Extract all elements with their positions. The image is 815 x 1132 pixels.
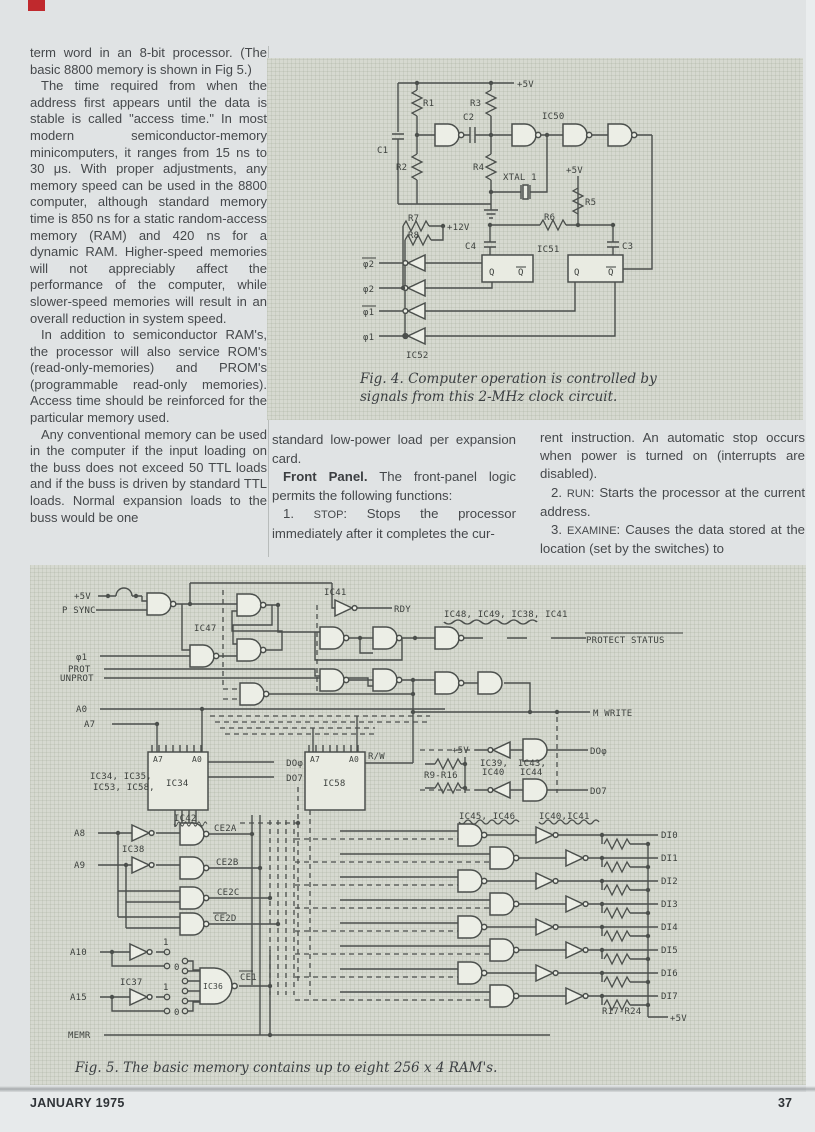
svg-text:DI7: DI7 bbox=[661, 992, 678, 1002]
pullup-resistor bbox=[604, 908, 630, 918]
svg-text:DI0: DI0 bbox=[661, 831, 678, 841]
svg-text:IC48, IC49, IC38, IC41: IC48, IC49, IC38, IC41 bbox=[444, 610, 568, 620]
page-edge-strip bbox=[806, 0, 815, 1132]
svg-text:R9-R16: R9-R16 bbox=[424, 771, 458, 781]
svg-text:DOφ: DOφ bbox=[286, 759, 303, 769]
inverter-icon bbox=[403, 255, 425, 271]
svg-text:IC47: IC47 bbox=[194, 624, 216, 634]
and-gate-icon bbox=[523, 739, 547, 761]
nand-gate-icon bbox=[237, 639, 266, 661]
resistor-R1 bbox=[412, 90, 422, 116]
pullup-resistor bbox=[604, 954, 630, 964]
nand-gate-icon bbox=[240, 683, 269, 705]
buffer-icon bbox=[132, 857, 154, 873]
nand-gate-icon bbox=[237, 594, 266, 616]
svg-text:P SYNC: P SYNC bbox=[62, 606, 96, 616]
resistor-R2 bbox=[412, 154, 422, 180]
pullup-resistor bbox=[604, 931, 630, 941]
nand-gate-icon bbox=[147, 593, 176, 615]
fig4-caption-line2: signals from this 2-MHz clock circuit. bbox=[360, 389, 617, 405]
nand-gate-icon bbox=[458, 870, 487, 892]
svg-text:IC51: IC51 bbox=[537, 245, 559, 255]
nand-gate-icon bbox=[435, 124, 464, 146]
buffer-icon bbox=[130, 989, 152, 1005]
nand-gate-icon bbox=[180, 857, 209, 879]
nand-gate-icon bbox=[435, 627, 464, 649]
svg-text:A10: A10 bbox=[70, 948, 87, 958]
right-text-column: rent instruction. An automatic stop occu… bbox=[540, 429, 805, 558]
svg-text:+5V: +5V bbox=[517, 80, 534, 90]
buffer-icon bbox=[536, 827, 558, 843]
svg-text:IC40,IC41: IC40,IC41 bbox=[539, 812, 590, 822]
fig4-caption-line1: Fig. 4. Computer operation is controlled… bbox=[360, 371, 657, 387]
fig4-labels: +5V R1 R3 C2 IC50 C1 R2 R4 XTAL 1 +5V R5… bbox=[362, 80, 633, 361]
buffer-icon bbox=[566, 850, 588, 866]
svg-text:IC41: IC41 bbox=[324, 588, 346, 598]
fig4-wires bbox=[379, 83, 652, 336]
item-keyword: STOP bbox=[314, 509, 344, 521]
buffer-icon bbox=[536, 873, 558, 889]
svg-text:Q: Q bbox=[518, 268, 524, 278]
svg-text:CE2A: CE2A bbox=[214, 824, 237, 834]
svg-text:IC58: IC58 bbox=[323, 779, 345, 789]
inverter-icon bbox=[488, 782, 510, 798]
paragraph: standard low-power load per expansion ca… bbox=[272, 431, 516, 468]
svg-text:φ2: φ2 bbox=[363, 285, 374, 295]
nand-gate-icon bbox=[490, 847, 519, 869]
pullup-resistor bbox=[604, 862, 630, 872]
nand-gate-icon bbox=[490, 985, 519, 1007]
svg-text:1: 1 bbox=[163, 938, 169, 948]
fig5-jumper-pads bbox=[164, 949, 187, 1013]
item-number: 3. bbox=[551, 522, 567, 537]
svg-text:CE1: CE1 bbox=[240, 973, 257, 983]
and-gate-icon bbox=[523, 779, 547, 801]
buffer-icon bbox=[130, 944, 152, 960]
svg-text:+12V: +12V bbox=[447, 223, 470, 233]
svg-text:R5: R5 bbox=[585, 198, 596, 208]
svg-text:C3: C3 bbox=[622, 242, 633, 252]
pullup-resistor bbox=[435, 759, 461, 769]
inverter-icon bbox=[403, 303, 425, 319]
svg-text:R4: R4 bbox=[473, 163, 484, 173]
nand-gate-icon bbox=[458, 824, 487, 846]
pullup-resistor bbox=[435, 783, 461, 793]
nand-gate-icon bbox=[490, 939, 519, 961]
paragraph: term word in an 8-bit processor. (The ba… bbox=[30, 45, 267, 78]
fig5-memory-schematic: +5V P SYNC φ1 PROT UNPROT IC47 IC41 RDY … bbox=[30, 565, 806, 1085]
paragraph: Any conventional memory can be used in t… bbox=[30, 427, 267, 527]
svg-text:CE2B: CE2B bbox=[216, 858, 238, 868]
svg-text:R6: R6 bbox=[544, 213, 555, 223]
nand-gate-icon bbox=[320, 627, 349, 649]
buffer-icon bbox=[536, 919, 558, 935]
svg-text:DO7: DO7 bbox=[590, 787, 607, 797]
svg-text:+5V: +5V bbox=[566, 166, 583, 176]
nand-gate-icon bbox=[373, 669, 402, 691]
svg-text:MEMR: MEMR bbox=[68, 1031, 91, 1041]
item-keyword: RUN bbox=[567, 488, 591, 500]
svg-text:A7: A7 bbox=[84, 720, 95, 730]
nand-gate-icon bbox=[458, 916, 487, 938]
svg-text:XTAL 1: XTAL 1 bbox=[503, 173, 537, 183]
paragraph: Front Panel. The front-panel logic permi… bbox=[272, 468, 516, 505]
svg-text:UNPROT: UNPROT bbox=[60, 674, 94, 684]
crystal-body bbox=[523, 185, 528, 199]
figure-4-panel: +5V R1 R3 C2 IC50 C1 R2 R4 XTAL 1 +5V R5… bbox=[267, 58, 803, 420]
fig4-clock-schematic: +5V R1 R3 C2 IC50 C1 R2 R4 XTAL 1 +5V R5… bbox=[267, 58, 803, 368]
list-item: 1. STOP: Stops the processor immediately… bbox=[272, 505, 516, 543]
nand-gate-icon bbox=[435, 672, 464, 694]
nand-gate-icon bbox=[180, 913, 209, 935]
svg-text:C1: C1 bbox=[377, 146, 388, 156]
list-item: 3. EXAMINE: Causes the data stored at th… bbox=[540, 521, 805, 558]
svg-text:IC36: IC36 bbox=[203, 982, 223, 991]
svg-text:φ1: φ1 bbox=[363, 333, 374, 343]
svg-text:IC40: IC40 bbox=[482, 768, 504, 778]
nand-gate-icon bbox=[512, 124, 541, 146]
svg-text:DI1: DI1 bbox=[661, 854, 678, 864]
svg-text:R17-R24: R17-R24 bbox=[602, 1007, 641, 1017]
fig5-caption: Fig. 5. The basic memory contains up to … bbox=[75, 1060, 775, 1078]
svg-text:R8: R8 bbox=[408, 231, 419, 241]
svg-text:R1: R1 bbox=[423, 99, 434, 109]
inverter-icon bbox=[403, 280, 425, 296]
svg-text:DI4: DI4 bbox=[661, 923, 678, 933]
front-panel-heading: Front Panel. bbox=[283, 469, 368, 484]
svg-text:M WRITE: M WRITE bbox=[593, 709, 632, 719]
svg-text:+5V: +5V bbox=[74, 592, 91, 602]
magazine-page: term word in an 8-bit processor. (The ba… bbox=[0, 0, 815, 1132]
figure-5-panel: +5V P SYNC φ1 PROT UNPROT IC47 IC41 RDY … bbox=[30, 565, 806, 1085]
svg-text:IC44: IC44 bbox=[520, 768, 542, 778]
svg-text:A0: A0 bbox=[76, 705, 87, 715]
svg-text:R2: R2 bbox=[396, 163, 407, 173]
paragraph: rent instruction. An automatic stop occu… bbox=[540, 429, 805, 484]
svg-text:A8: A8 bbox=[74, 829, 85, 839]
paragraph: The time required from when the address … bbox=[30, 78, 267, 327]
svg-text:IC37: IC37 bbox=[120, 978, 142, 988]
fig4-caption: Fig. 4. Computer operation is controlled… bbox=[360, 371, 740, 406]
svg-text:DI5: DI5 bbox=[661, 946, 678, 956]
item-keyword: EXAMINE bbox=[567, 525, 617, 537]
svg-text:+5V: +5V bbox=[452, 746, 469, 756]
svg-text:CE2D: CE2D bbox=[214, 914, 236, 924]
nand-gate-icon bbox=[373, 627, 402, 649]
svg-text:IC42: IC42 bbox=[174, 814, 196, 824]
svg-text:IC38: IC38 bbox=[122, 845, 144, 855]
svg-text:CE2C: CE2C bbox=[217, 888, 239, 898]
buffer-icon bbox=[335, 600, 357, 616]
svg-text:0: 0 bbox=[174, 1008, 180, 1018]
left-text-column: term word in an 8-bit processor. (The ba… bbox=[30, 45, 267, 526]
group-brace bbox=[444, 620, 537, 624]
svg-text:R3: R3 bbox=[470, 99, 481, 109]
pullup-resistor bbox=[604, 977, 630, 987]
middle-text-column: standard low-power load per expansion ca… bbox=[272, 431, 516, 544]
item-number: 2. bbox=[551, 485, 567, 500]
nand-gate-icon bbox=[458, 962, 487, 984]
footer-page-number: 37 bbox=[778, 1096, 792, 1110]
buffer-icon bbox=[566, 942, 588, 958]
svg-text:IC53, IC58,: IC53, IC58, bbox=[93, 783, 155, 793]
svg-text:DI2: DI2 bbox=[661, 877, 678, 887]
svg-text:IC34: IC34 bbox=[166, 779, 188, 789]
svg-text:1: 1 bbox=[163, 983, 169, 993]
nand-gate-icon bbox=[563, 124, 592, 146]
svg-text:Q: Q bbox=[608, 268, 614, 278]
nand-gate-icon bbox=[190, 645, 219, 667]
svg-text:IC45, IC46: IC45, IC46 bbox=[459, 812, 515, 822]
svg-text:A7: A7 bbox=[310, 755, 320, 764]
buffer-icon bbox=[566, 896, 588, 912]
svg-text:0: 0 bbox=[174, 963, 180, 973]
pullup-resistor bbox=[604, 885, 630, 895]
svg-text:A0: A0 bbox=[192, 755, 202, 764]
svg-text:A9: A9 bbox=[74, 861, 85, 871]
svg-text:PROTECT STATUS: PROTECT STATUS bbox=[586, 636, 665, 646]
item-number: 1. bbox=[283, 506, 314, 521]
ic36-bubble bbox=[232, 983, 237, 988]
resistor-R4 bbox=[486, 154, 496, 180]
buffer-icon bbox=[566, 988, 588, 1004]
nand-gate-icon bbox=[320, 669, 349, 691]
svg-text:φ1: φ1 bbox=[363, 308, 374, 318]
and-gate-icon bbox=[478, 672, 502, 694]
svg-text:A7: A7 bbox=[153, 755, 163, 764]
svg-text:φ2: φ2 bbox=[363, 260, 374, 270]
svg-text:A15: A15 bbox=[70, 993, 87, 1003]
svg-text:+5V: +5V bbox=[670, 1014, 687, 1024]
buffer-icon bbox=[132, 825, 154, 841]
red-registration-mark bbox=[28, 0, 45, 11]
svg-text:Q: Q bbox=[574, 268, 580, 278]
resistor-R3 bbox=[486, 90, 496, 116]
svg-text:R7: R7 bbox=[408, 214, 419, 224]
svg-text:C4: C4 bbox=[465, 242, 476, 252]
list-item: 2. RUN: Starts the processor at the curr… bbox=[540, 484, 805, 521]
svg-text:DI3: DI3 bbox=[661, 900, 678, 910]
svg-text:C2: C2 bbox=[463, 113, 474, 123]
nand-gate-icon bbox=[180, 887, 209, 909]
svg-text:φ1: φ1 bbox=[76, 653, 87, 663]
svg-text:IC52: IC52 bbox=[406, 351, 428, 361]
nand-gate-icon bbox=[608, 124, 637, 146]
svg-text:IC50: IC50 bbox=[542, 112, 564, 122]
svg-text:DO7: DO7 bbox=[286, 774, 303, 784]
svg-text:Q: Q bbox=[489, 268, 495, 278]
svg-text:DOφ: DOφ bbox=[590, 747, 607, 757]
nand-gate-icon bbox=[180, 823, 209, 845]
svg-text:DI6: DI6 bbox=[661, 969, 678, 979]
svg-text:IC34, IC35,: IC34, IC35, bbox=[90, 772, 152, 782]
paragraph: In addition to semiconductor RAM's, the … bbox=[30, 327, 267, 427]
nand-gate-icon bbox=[490, 893, 519, 915]
inverter-icon bbox=[488, 742, 510, 758]
pullup-resistor bbox=[604, 839, 630, 849]
footer-issue-date: JANUARY 1975 bbox=[30, 1096, 125, 1110]
buffer-icon bbox=[536, 965, 558, 981]
svg-text:R/W: R/W bbox=[368, 752, 385, 762]
fig4-junctions bbox=[401, 81, 615, 338]
svg-text:RDY: RDY bbox=[394, 605, 411, 615]
svg-text:A0: A0 bbox=[349, 755, 359, 764]
